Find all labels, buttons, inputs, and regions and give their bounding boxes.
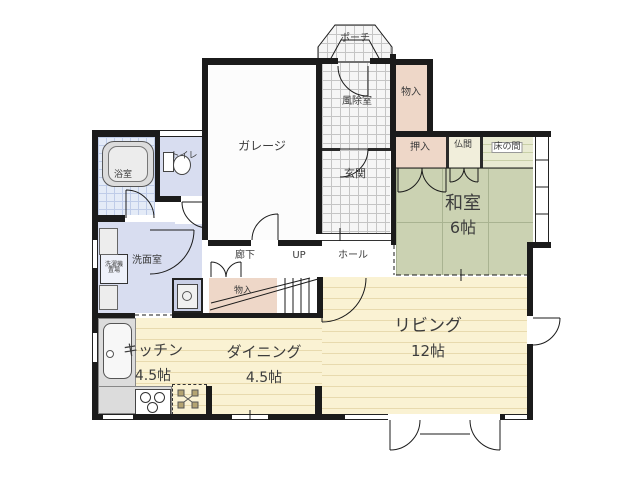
wall bbox=[92, 414, 103, 420]
wall bbox=[317, 277, 323, 318]
wall bbox=[368, 148, 392, 151]
entrance-step bbox=[322, 233, 391, 241]
stairs-floor bbox=[277, 278, 317, 313]
living-label: リビング bbox=[394, 318, 462, 335]
door-arc bbox=[533, 318, 560, 345]
washroom-cabinet bbox=[99, 228, 118, 255]
washitsu-label: 和室 bbox=[445, 195, 481, 213]
wall bbox=[315, 386, 322, 414]
wall bbox=[391, 150, 396, 245]
dining-label: ダイニング bbox=[226, 345, 301, 360]
entrance-floor bbox=[322, 150, 390, 233]
wall bbox=[202, 62, 208, 240]
window-band bbox=[535, 137, 549, 242]
closet-label: 押入 bbox=[410, 143, 430, 153]
wall bbox=[322, 148, 340, 151]
wall bbox=[316, 58, 338, 64]
stove-burner bbox=[154, 392, 165, 403]
tokonoma-label: 床の間 bbox=[491, 142, 522, 153]
wall bbox=[155, 137, 160, 202]
kitchen-faucet bbox=[106, 350, 114, 358]
wall bbox=[390, 131, 551, 137]
laundry-box: 洗濯機 置場 bbox=[100, 254, 128, 284]
dining-table bbox=[172, 384, 207, 415]
wall bbox=[480, 137, 483, 168]
storage-upper-label: 物入 bbox=[401, 88, 421, 98]
wall bbox=[427, 59, 433, 137]
wall bbox=[133, 414, 232, 420]
wall bbox=[155, 196, 181, 202]
wall bbox=[268, 414, 345, 420]
stairs-up-label: UP bbox=[292, 251, 305, 261]
garage-label: ガレージ bbox=[238, 140, 286, 152]
wall bbox=[446, 137, 449, 168]
hall-label: ホール bbox=[338, 251, 368, 261]
dining-size: 4.5帖 bbox=[246, 371, 282, 385]
wall bbox=[202, 58, 322, 65]
storage-stairs-label: 物入 bbox=[234, 287, 252, 296]
wall bbox=[92, 313, 135, 318]
kitchen-label: キッチン bbox=[123, 343, 183, 358]
wall bbox=[278, 240, 322, 246]
windbreak-label: 風除室 bbox=[342, 97, 372, 107]
butsuma-label: 仏間 bbox=[454, 141, 472, 150]
wall bbox=[206, 386, 212, 414]
window bbox=[232, 414, 268, 420]
living-size: 12帖 bbox=[411, 344, 445, 359]
window bbox=[92, 240, 98, 268]
window bbox=[345, 414, 388, 420]
wall bbox=[527, 248, 533, 316]
washroom-cabinet bbox=[99, 285, 118, 310]
kitchen-size: 4.5帖 bbox=[135, 369, 171, 383]
porch-label: ポーチ bbox=[340, 34, 370, 44]
bath-label: 浴室 bbox=[114, 171, 132, 180]
laundry-label-line2: 置場 bbox=[101, 268, 127, 274]
storage-upper-floor bbox=[396, 65, 427, 137]
corridor-label: 廊下 bbox=[235, 251, 255, 261]
stove-burner bbox=[147, 402, 158, 413]
wall bbox=[527, 344, 533, 414]
floor-plan: 洗濯機 置場 bbox=[0, 0, 640, 480]
window bbox=[92, 333, 98, 362]
wall bbox=[527, 414, 533, 420]
window bbox=[505, 414, 527, 420]
corridor-nook-floor bbox=[175, 202, 202, 224]
toilet-label: トイレ bbox=[170, 152, 197, 161]
double-door-arc bbox=[211, 262, 241, 277]
stove-burner bbox=[140, 392, 151, 403]
entrance-label: 玄関 bbox=[344, 168, 366, 179]
wall bbox=[208, 240, 251, 246]
french-door-arcs bbox=[390, 420, 500, 450]
wall bbox=[172, 313, 322, 318]
wall bbox=[92, 130, 160, 137]
window bbox=[103, 414, 133, 420]
washroom-label: 洗面室 bbox=[132, 256, 162, 266]
wall bbox=[92, 137, 98, 240]
wall bbox=[92, 215, 125, 222]
vanity-faucet bbox=[182, 291, 192, 301]
wall bbox=[92, 268, 98, 333]
washitsu-size: 6帖 bbox=[450, 220, 476, 236]
window bbox=[160, 130, 202, 137]
wall bbox=[92, 362, 98, 414]
